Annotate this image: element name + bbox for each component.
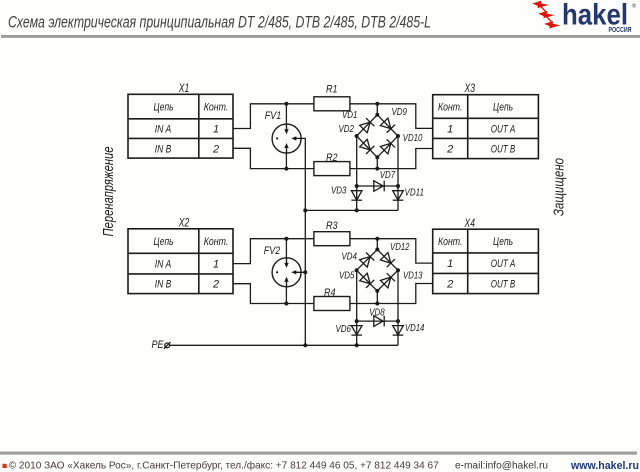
svg-text:2: 2 [212, 143, 219, 155]
svg-text:Конт.: Конт. [204, 236, 229, 248]
svg-text:X3: X3 [464, 83, 476, 95]
svg-text:IN A: IN A [155, 259, 172, 271]
svg-text:Защищено: Защищено [551, 158, 568, 216]
svg-text:Цепь: Цепь [154, 102, 174, 114]
svg-text:1: 1 [213, 124, 219, 136]
svg-text:OUT A: OUT A [491, 258, 516, 270]
svg-text:1: 1 [447, 258, 453, 270]
svg-text:VD2: VD2 [339, 123, 355, 135]
svg-text:VD13: VD13 [403, 270, 423, 282]
svg-text:www.hakel.ru: www.hakel.ru [570, 460, 639, 472]
svg-text:VD12: VD12 [390, 241, 410, 253]
svg-text:1: 1 [213, 259, 219, 271]
svg-text:Конт.: Конт. [438, 236, 463, 248]
svg-text:VD5: VD5 [339, 270, 355, 282]
svg-text:FV2: FV2 [264, 245, 281, 257]
svg-text:Цепь: Цепь [154, 236, 174, 248]
svg-text:2: 2 [212, 279, 219, 291]
svg-text:R1: R1 [326, 83, 338, 95]
svg-text:IN B: IN B [155, 279, 172, 291]
svg-text:VD14: VD14 [405, 322, 425, 334]
svg-text:R3: R3 [326, 220, 338, 232]
svg-text:© 2010 ЗАО «Хакель Рос», г.Сан: © 2010 ЗАО «Хакель Рос», г.Санкт-Петербу… [9, 459, 439, 471]
svg-text:VD10: VD10 [403, 132, 423, 144]
svg-text:R4: R4 [324, 287, 336, 299]
svg-text:VD11: VD11 [405, 186, 425, 198]
svg-text:Схема электрическая принципиал: Схема электрическая принципиальная DT 2/… [8, 12, 431, 31]
svg-text:X2: X2 [178, 218, 190, 230]
svg-text:VD4: VD4 [342, 251, 358, 263]
svg-text:VD6: VD6 [336, 323, 352, 335]
svg-text:Цепь: Цепь [493, 102, 513, 114]
svg-text:OUT B: OUT B [491, 144, 516, 156]
svg-text:X4: X4 [464, 218, 475, 230]
svg-text:OUT A: OUT A [491, 123, 516, 135]
svg-text:FV1: FV1 [265, 110, 282, 122]
svg-text:OUT B: OUT B [491, 279, 516, 291]
svg-text:®: ® [632, 2, 637, 9]
svg-text:VD8: VD8 [369, 306, 385, 318]
svg-text:Перенапряжение: Перенапряжение [100, 147, 117, 237]
svg-text:IN A: IN A [155, 124, 172, 136]
svg-text:VD1: VD1 [342, 109, 358, 121]
svg-text:Конт.: Конт. [438, 102, 463, 114]
svg-text:2: 2 [446, 144, 453, 156]
svg-text:Цепь: Цепь [493, 236, 513, 248]
svg-text:2: 2 [446, 279, 453, 291]
svg-text:IN B: IN B [155, 143, 172, 155]
svg-text:VD3: VD3 [331, 185, 347, 197]
svg-text:e-mail:info@hakel.ru: e-mail:info@hakel.ru [455, 460, 548, 471]
svg-text:РОССИЯ: РОССИЯ [609, 25, 632, 34]
svg-text:PE: PE [152, 339, 165, 351]
svg-text:Конт.: Конт. [204, 102, 229, 114]
svg-text:VD9: VD9 [392, 106, 408, 118]
svg-text:VD7: VD7 [380, 169, 396, 181]
svg-text:1: 1 [447, 123, 453, 135]
svg-text:X1: X1 [178, 83, 189, 95]
svg-text:R2: R2 [326, 152, 338, 164]
